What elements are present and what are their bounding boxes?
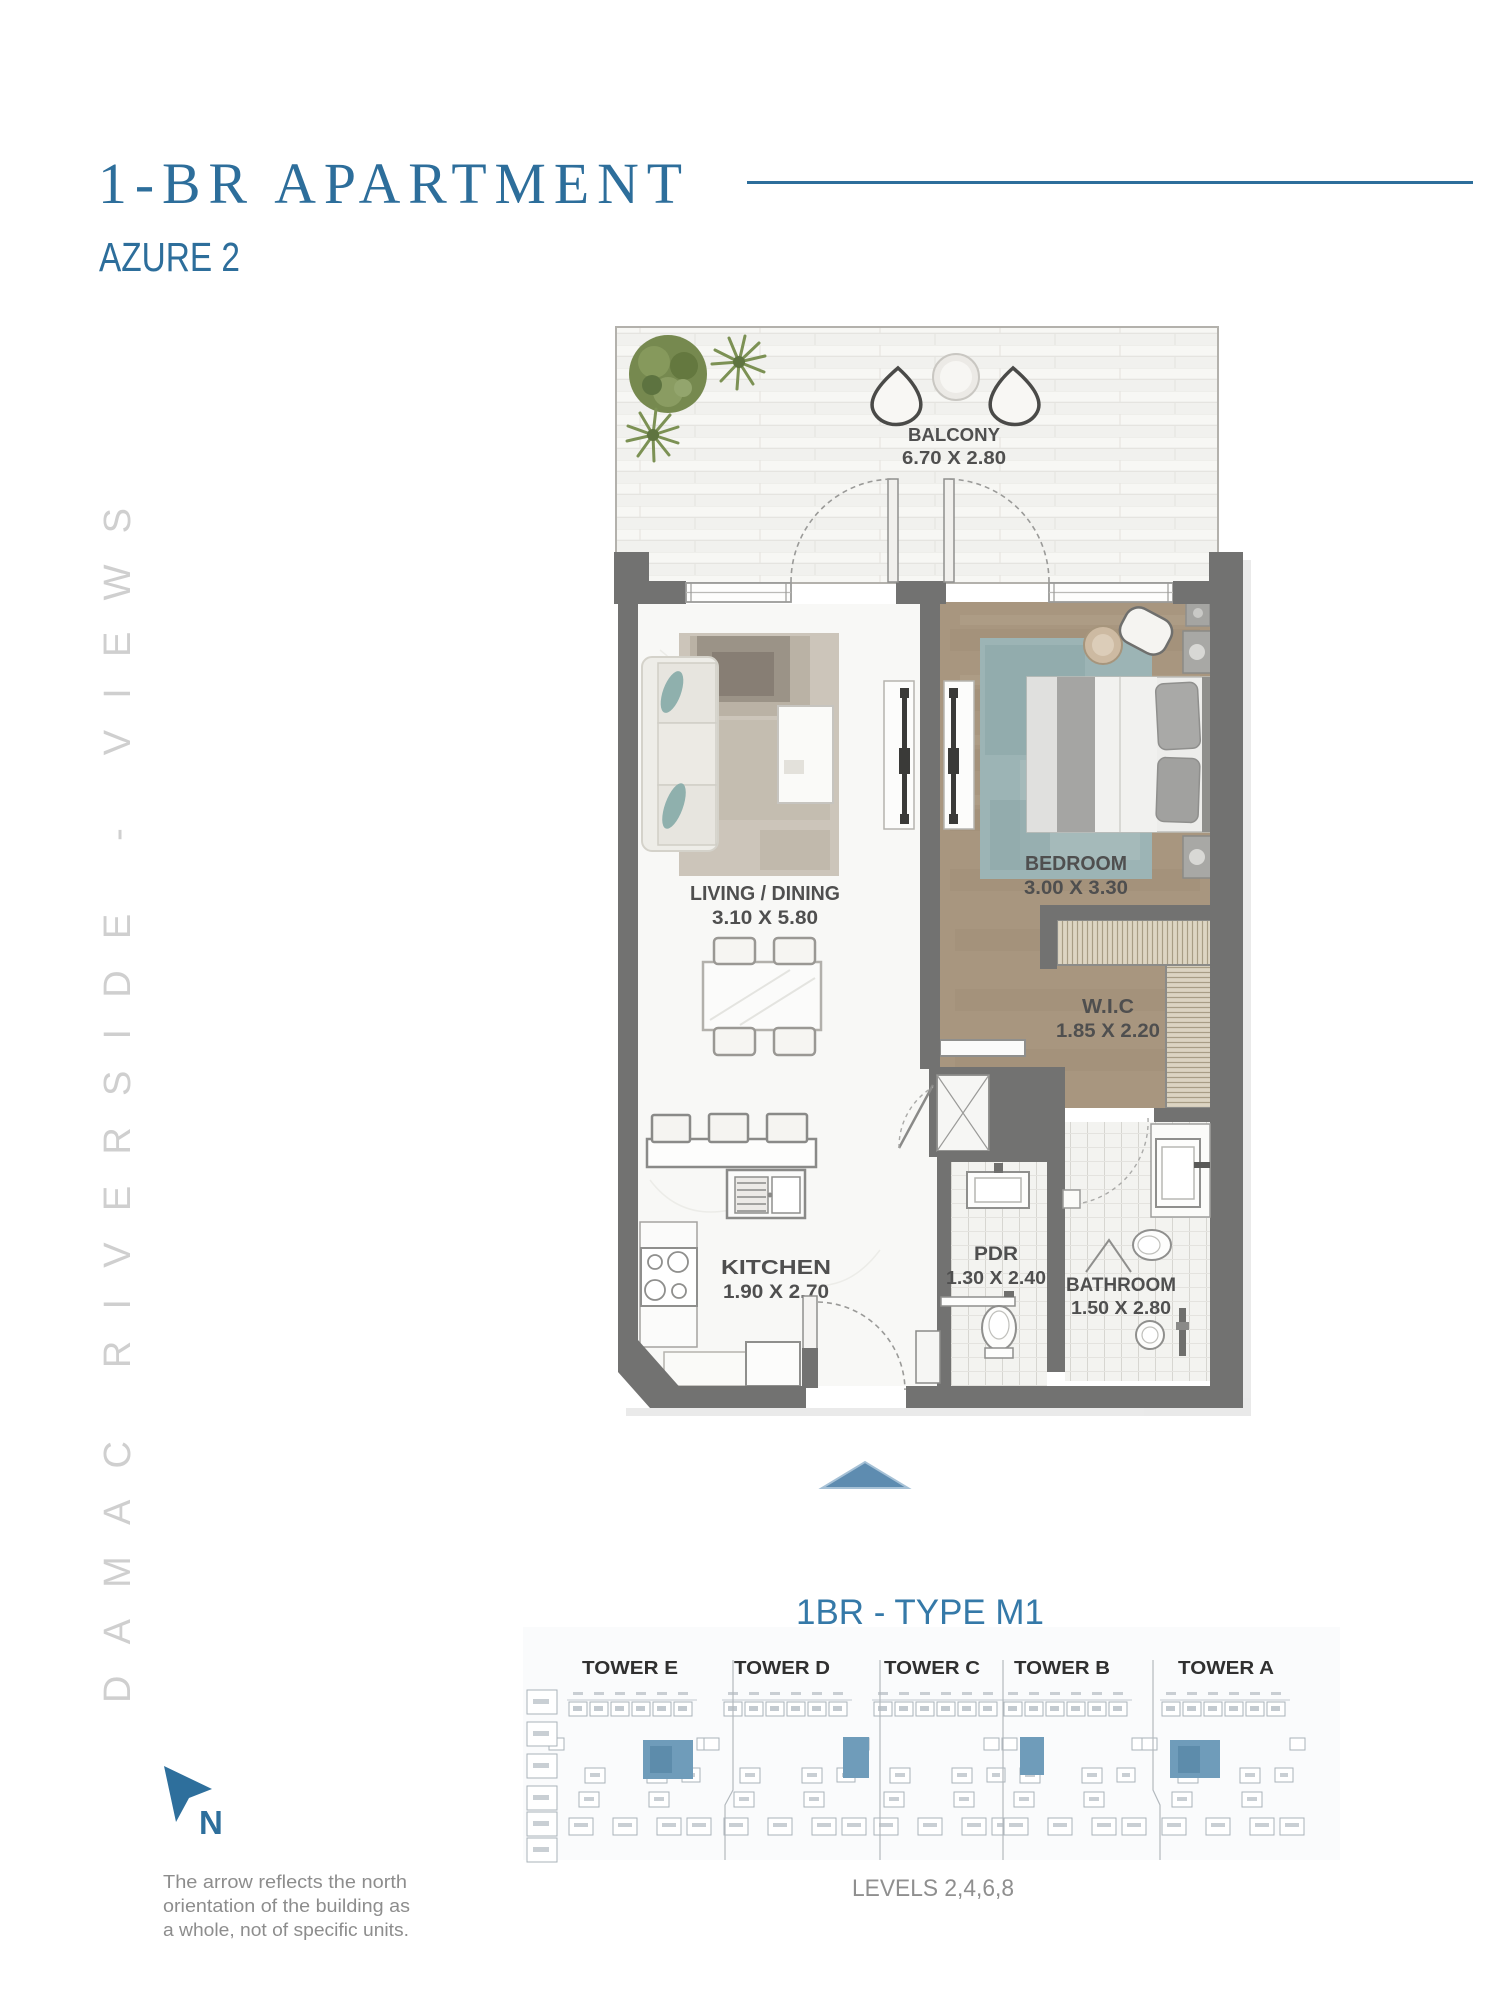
svg-text:KITCHEN: KITCHEN [721, 1257, 831, 1279]
svg-text:BALCONY: BALCONY [908, 425, 1000, 445]
svg-text:3.10 X 5.80: 3.10 X 5.80 [712, 908, 818, 929]
svg-text:LEVELS 2,4,6,8: LEVELS 2,4,6,8 [852, 1875, 1014, 1902]
svg-text:TOWER D: TOWER D [734, 1658, 830, 1678]
svg-text:TOWER A: TOWER A [1178, 1658, 1274, 1678]
svg-text:1-BR APARTMENT: 1-BR APARTMENT [98, 151, 690, 216]
svg-text:a whole, not of specific units: a whole, not of specific units. [163, 1920, 409, 1940]
svg-text:AZURE 2: AZURE 2 [99, 234, 240, 280]
svg-text:W.I.C: W.I.C [1082, 996, 1134, 1018]
svg-text:orientation of the building a: orientation of the building as [163, 1896, 410, 1916]
svg-text:1.30 X 2.40: 1.30 X 2.40 [946, 1268, 1046, 1288]
svg-text:PDR: PDR [974, 1244, 1018, 1265]
svg-text:6.70 X 2.80: 6.70 X 2.80 [902, 448, 1006, 468]
svg-text:1.50 X 2.80: 1.50 X 2.80 [1071, 1298, 1171, 1318]
svg-text:1BR - TYPE M1: 1BR - TYPE M1 [796, 1593, 1044, 1632]
svg-text:LIVING / DINING: LIVING / DINING [690, 883, 840, 905]
svg-text:BEDROOM: BEDROOM [1025, 853, 1127, 875]
svg-text:3.00 X 3.30: 3.00 X 3.30 [1024, 878, 1128, 899]
svg-text:N: N [199, 1804, 223, 1841]
svg-text:BATHROOM: BATHROOM [1066, 1275, 1176, 1296]
svg-text:TOWER C: TOWER C [884, 1658, 980, 1678]
svg-text:1.85 X 2.20: 1.85 X 2.20 [1056, 1021, 1160, 1042]
svg-text:The arrow reflects the north: The arrow reflects the north [163, 1872, 407, 1892]
svg-text:TOWER E: TOWER E [582, 1658, 678, 1678]
svg-text:TOWER B: TOWER B [1014, 1658, 1110, 1678]
